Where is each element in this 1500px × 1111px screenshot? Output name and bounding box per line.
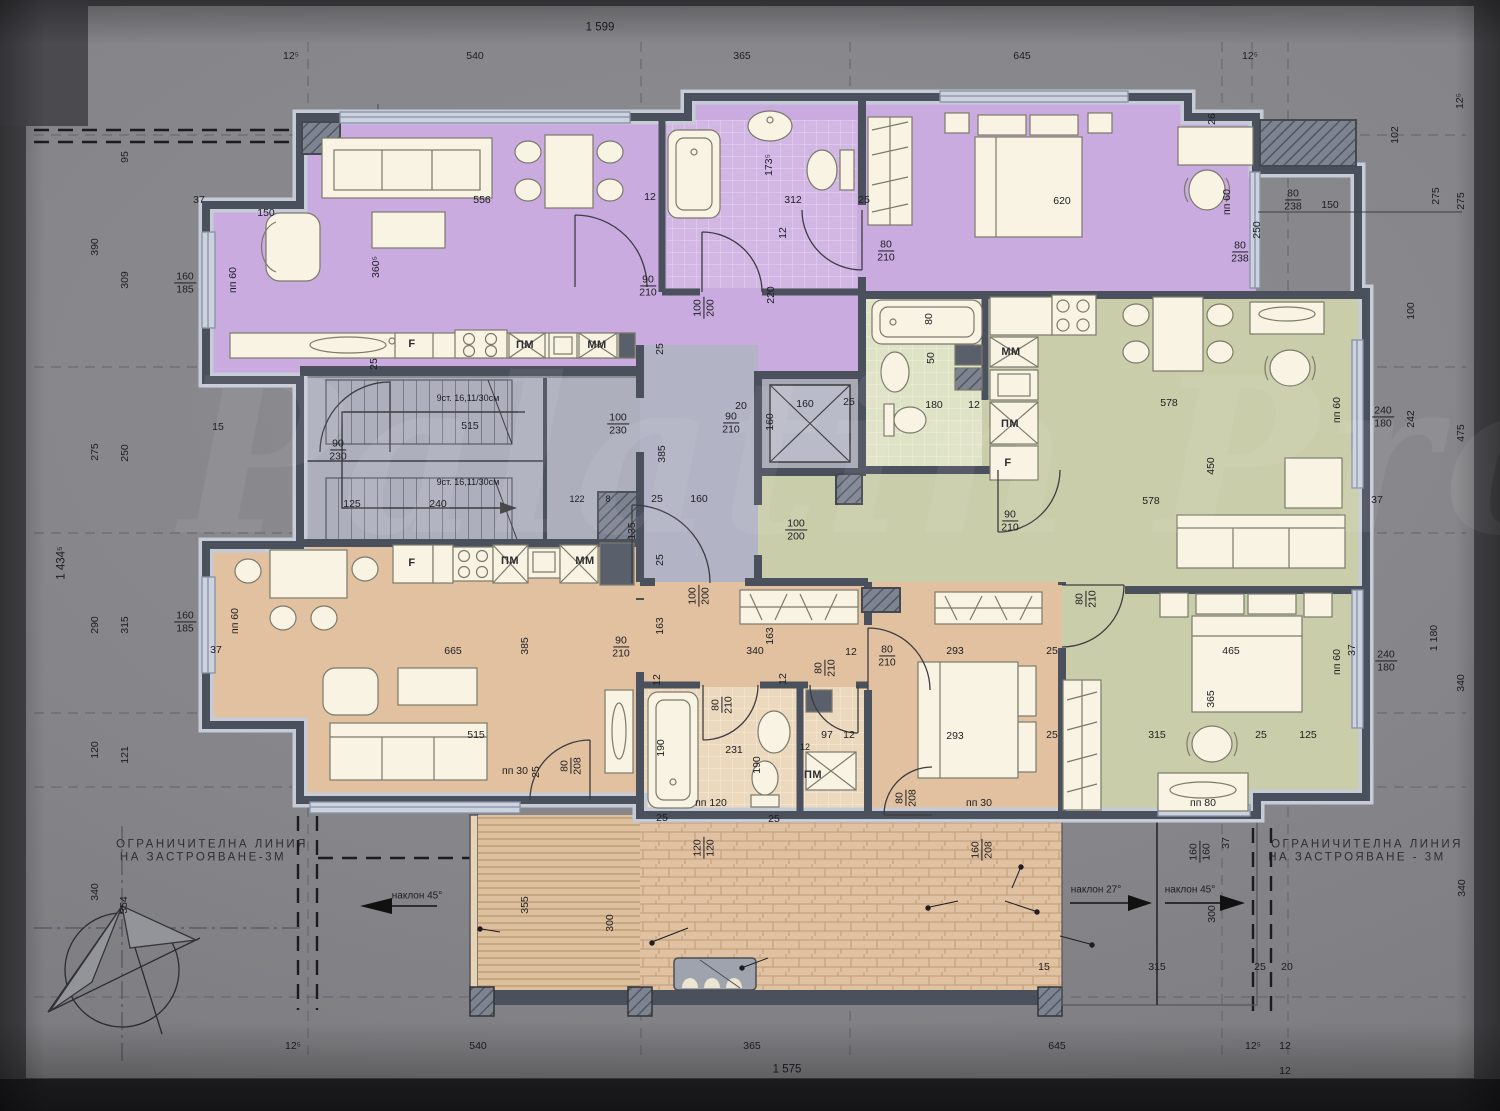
dim-label: 9ст. 16,11/30см bbox=[437, 394, 500, 404]
dim-label: 340 bbox=[1457, 879, 1469, 897]
dim-label: 180 bbox=[925, 400, 943, 412]
dim-label: 150 bbox=[257, 208, 275, 220]
dim-label: 242 bbox=[1406, 410, 1418, 428]
appliance-label: ММ bbox=[1001, 346, 1020, 358]
dim-label: 100200 bbox=[785, 517, 807, 542]
dim-label: 90210 bbox=[1001, 508, 1019, 533]
dim-label: 240180 bbox=[1372, 404, 1394, 429]
dim-label: 309 bbox=[120, 271, 132, 289]
dim-label: 80 bbox=[924, 313, 936, 325]
appliance-label: ПМ bbox=[516, 339, 534, 351]
dim-label: 160 bbox=[796, 399, 814, 411]
dim-label: 100 bbox=[1406, 302, 1418, 320]
dim-label: 340 bbox=[746, 646, 764, 658]
dim-label: 37 bbox=[1221, 837, 1233, 849]
dim-label: 25 bbox=[1255, 730, 1267, 742]
dim-label: 150 bbox=[1321, 200, 1339, 212]
dim-label: 12 bbox=[778, 673, 790, 685]
dim-label: 300 bbox=[1207, 905, 1219, 923]
dim-label: 390 bbox=[90, 238, 102, 256]
dim-label: 354 bbox=[119, 896, 131, 914]
dim-label: 12 bbox=[652, 674, 664, 686]
dim-label: 620 bbox=[1053, 196, 1071, 208]
dim-label: 12 bbox=[1279, 1041, 1291, 1053]
dim-label: 293 bbox=[946, 646, 964, 658]
dim-label: 220 bbox=[766, 286, 778, 304]
dim-label: 25 bbox=[858, 195, 870, 207]
dim-label: 540 bbox=[469, 1041, 487, 1053]
dim-label: 20 bbox=[735, 401, 747, 413]
dim-label: 37 bbox=[1371, 495, 1383, 507]
dim-label: 160185 bbox=[174, 609, 196, 634]
dim-label: 365 bbox=[743, 1041, 761, 1053]
appliance-label: ПМ bbox=[804, 769, 822, 781]
dim-label: 80210 bbox=[709, 696, 734, 714]
dim-label: 645 bbox=[1048, 1041, 1066, 1053]
dim-label: 355 bbox=[520, 896, 532, 914]
dim-label: 9ст. 16,11/30см bbox=[437, 478, 500, 488]
dim-label: 290 bbox=[90, 616, 102, 634]
dim-label: 80210 bbox=[878, 643, 896, 668]
dim-label: 240180 bbox=[1375, 648, 1397, 673]
dim-label: пп 60 bbox=[1222, 189, 1234, 215]
dim-label: 275 bbox=[1431, 187, 1443, 205]
dim-label: 37 bbox=[1347, 644, 1359, 656]
dim-label: 450 bbox=[1206, 457, 1218, 475]
dim-label: 12⁵ bbox=[285, 1041, 301, 1053]
dim-label: 275 bbox=[90, 443, 102, 461]
dim-label: 25 bbox=[651, 494, 663, 506]
dim-label: 385 bbox=[520, 637, 532, 655]
appliance-label: ММ bbox=[587, 339, 606, 351]
dim-label: 315 bbox=[120, 616, 132, 634]
dim-label: 12⁵ bbox=[283, 51, 299, 63]
dim-label: 250 bbox=[120, 444, 132, 462]
dim-label: 135 bbox=[627, 522, 639, 540]
dim-label: 97 bbox=[821, 730, 833, 742]
dim-label: 540 bbox=[466, 51, 484, 63]
dim-label: 365 bbox=[1206, 690, 1218, 708]
dim-label: 12 bbox=[644, 192, 656, 204]
dim-label: 385 bbox=[657, 445, 669, 463]
dim-label: 12 bbox=[778, 227, 790, 239]
dim-label: 12 bbox=[968, 400, 980, 412]
dim-label: 190 bbox=[656, 739, 668, 757]
dim-label: 12⁵ bbox=[1245, 1041, 1261, 1053]
dim-label: 275 bbox=[1456, 192, 1468, 210]
dim-label: 37 bbox=[193, 195, 205, 207]
dim-label: 515 bbox=[461, 421, 479, 433]
dim-label: 25 bbox=[768, 814, 780, 826]
dim-label: 25 bbox=[656, 813, 668, 825]
dim-label: 578 bbox=[1160, 398, 1178, 410]
dim-label: 556 bbox=[473, 195, 491, 207]
dim-label: 80238 bbox=[1284, 187, 1302, 212]
dim-label: 12⁵ bbox=[1455, 93, 1467, 109]
dim-label: 190 bbox=[752, 756, 764, 774]
dim-label: 25 bbox=[1046, 730, 1058, 742]
dim-label: 25 bbox=[369, 358, 381, 370]
dim-label: 95 bbox=[120, 151, 132, 163]
dim-label: пп 120 bbox=[695, 798, 727, 810]
dim-label: 122 bbox=[569, 495, 584, 505]
dim-label: 160208 bbox=[969, 839, 994, 861]
dim-label: 100200 bbox=[691, 297, 716, 319]
dim-label: пп 30 bbox=[966, 798, 992, 810]
appliance-label: F bbox=[408, 557, 415, 569]
dim-label: 360⁵ bbox=[371, 256, 383, 278]
dim-label: 90230 bbox=[329, 437, 347, 462]
dim-label: 515 bbox=[467, 730, 485, 742]
dim-label: 15 bbox=[1038, 962, 1050, 974]
dim-label: 160185 bbox=[174, 270, 196, 295]
dim-label: 90210 bbox=[639, 273, 657, 298]
dim-label: 80210 bbox=[1073, 590, 1098, 608]
dim-label: 12 bbox=[1279, 1066, 1291, 1078]
dim-label: пп 60 bbox=[228, 267, 240, 293]
dim-label: 100200 bbox=[686, 585, 711, 607]
dim-label: 163 bbox=[655, 617, 667, 635]
dim-label: 102 bbox=[1390, 126, 1402, 144]
dim-label: 312 bbox=[784, 195, 802, 207]
appliance-label: ПМ bbox=[1001, 418, 1019, 430]
dim-label: 25 bbox=[655, 554, 667, 566]
dim-label: 340 bbox=[1456, 674, 1468, 692]
dim-label: 12 bbox=[843, 730, 855, 742]
appliance-label: F bbox=[408, 338, 415, 350]
dim-label: пп 60 bbox=[1332, 397, 1344, 423]
dim-label: 300 bbox=[605, 914, 617, 932]
dim-label: 8 bbox=[605, 495, 610, 505]
dim-label: пп 80 bbox=[1190, 798, 1216, 810]
dim-label: 160 bbox=[765, 413, 777, 431]
dim-label: 50 bbox=[926, 352, 938, 364]
dim-label: 163 bbox=[765, 627, 777, 645]
dim-label: 25 bbox=[1254, 962, 1266, 974]
dim-label: 578 bbox=[1142, 496, 1160, 508]
dim-label: 120 bbox=[90, 741, 102, 759]
dim-label: 231 bbox=[725, 745, 743, 757]
dim-label: 100230 bbox=[607, 411, 629, 436]
dim-label: 25 bbox=[531, 766, 543, 778]
dim-label: 12 bbox=[845, 647, 857, 659]
dim-label: 160160 bbox=[1187, 841, 1212, 863]
dim-label: пп 60 bbox=[1332, 649, 1344, 675]
dim-label: 315 bbox=[1148, 730, 1166, 742]
dim-label: 293 bbox=[946, 731, 964, 743]
floor-plan-page: Palatin Pro 12⁵54036564512⁵12⁵5403656451… bbox=[0, 0, 1500, 1111]
dim-label: пп 60 bbox=[230, 608, 242, 634]
dim-label: 80210 bbox=[812, 659, 837, 677]
dim-label: 1 180 bbox=[1429, 625, 1441, 651]
dim-label: 125 bbox=[343, 499, 361, 511]
dim-label: 80210 bbox=[877, 238, 895, 263]
dim-label: 173⁵ bbox=[764, 154, 776, 176]
dim-label: 160 bbox=[690, 494, 708, 506]
dim-label: 12⁵ bbox=[1242, 51, 1258, 63]
dim-label: 365 bbox=[733, 51, 751, 63]
appliance-label: ПМ bbox=[501, 555, 519, 567]
dim-label: 25 bbox=[1046, 646, 1058, 658]
dim-label: 250 bbox=[1252, 221, 1264, 239]
dim-label: пп 30 bbox=[502, 766, 528, 778]
dim-label: 120120 bbox=[691, 837, 716, 859]
dim-label: 26 bbox=[1207, 113, 1219, 125]
dim-label: 90210 bbox=[722, 410, 740, 435]
dim-label: 90210 bbox=[612, 634, 630, 659]
dimension-labels: 12⁵54036564512⁵12⁵54036564512⁵1212390953… bbox=[0, 0, 1500, 1111]
dim-label: 15 bbox=[212, 422, 224, 434]
dim-label: 121 bbox=[120, 746, 132, 764]
dim-label: 125 bbox=[1299, 730, 1317, 742]
appliance-label: F bbox=[1004, 457, 1011, 469]
dim-label: 465 bbox=[1222, 646, 1240, 658]
dim-label: 80208 bbox=[558, 757, 583, 775]
dim-label: 665 bbox=[444, 646, 462, 658]
dim-label: 80238 bbox=[1231, 239, 1249, 264]
dim-label: 25 bbox=[843, 397, 855, 409]
dim-label: 80208 bbox=[893, 789, 918, 807]
dim-label: 645 bbox=[1013, 51, 1031, 63]
dim-label: 475 bbox=[1456, 424, 1468, 442]
dim-label: 12 bbox=[800, 743, 810, 753]
dim-label: 315 bbox=[1148, 962, 1166, 974]
appliance-label: ММ bbox=[575, 555, 594, 567]
dim-label: 37 bbox=[210, 645, 222, 657]
dim-label: 240 bbox=[429, 499, 447, 511]
dim-label: 20 bbox=[1281, 962, 1293, 974]
dim-label: 340 bbox=[90, 883, 102, 901]
dim-label: 25 bbox=[655, 343, 667, 355]
